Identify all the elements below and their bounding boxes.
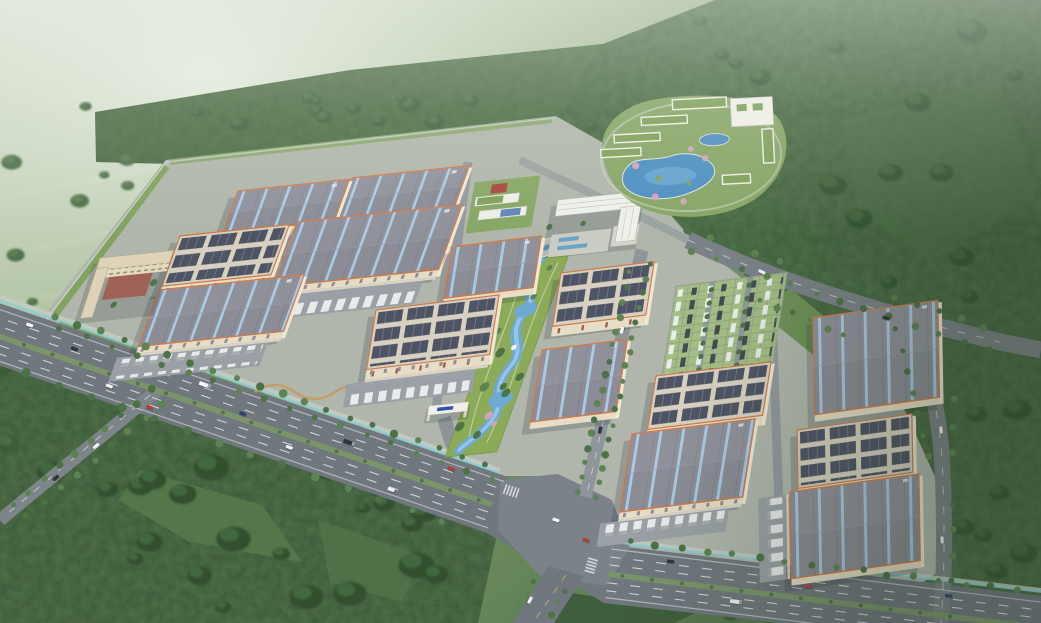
aerial-rendering-stage (0, 0, 1041, 623)
atmospheric-veil (0, 0, 1041, 623)
aerial-rendering (0, 0, 1041, 623)
